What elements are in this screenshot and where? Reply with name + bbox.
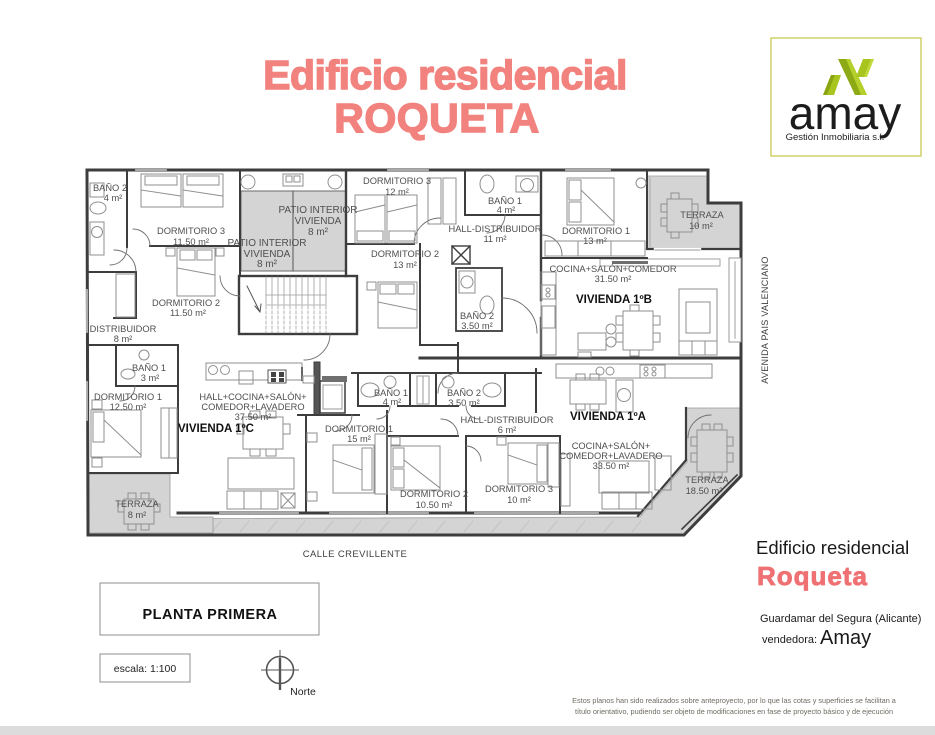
svg-text:Amay: Amay <box>820 627 871 649</box>
svg-text:DORMITORIO 1: DORMITORIO 1 <box>562 226 630 236</box>
svg-text:vendedora:: vendedora: <box>762 634 817 646</box>
svg-text:Gestión Inmobiliaria s.l.: Gestión Inmobiliaria s.l. <box>786 132 885 143</box>
svg-text:4 m²: 4 m² <box>383 397 402 407</box>
svg-text:12.50 m²: 12.50 m² <box>110 402 147 412</box>
svg-text:37.50 m²: 37.50 m² <box>235 412 272 422</box>
svg-text:ROQUETA: ROQUETA <box>334 95 539 141</box>
svg-text:COMEDOR+LAVADERO: COMEDOR+LAVADERO <box>559 451 662 461</box>
svg-text:AVENIDA PAIS VALENCIANO: AVENIDA PAIS VALENCIANO <box>760 256 770 383</box>
svg-text:8 m²: 8 m² <box>128 510 147 520</box>
svg-text:HALL-DISTRIBUIDOR: HALL-DISTRIBUIDOR <box>449 224 542 234</box>
svg-text:Edificio residencial: Edificio residencial <box>756 537 909 558</box>
svg-text:8 m²: 8 m² <box>257 259 278 270</box>
svg-text:3.50 m²: 3.50 m² <box>461 321 493 331</box>
svg-text:Roqueta: Roqueta <box>757 561 868 591</box>
svg-text:VIVIENDA 1ºC: VIVIENDA 1ºC <box>178 423 254 435</box>
svg-text:DORMITORIO 1: DORMITORIO 1 <box>94 392 162 402</box>
svg-text:BAÑO 2: BAÑO 2 <box>93 183 127 193</box>
svg-text:DORMITORIO 3: DORMITORIO 3 <box>485 484 553 494</box>
svg-text:DORMITORIO 2: DORMITORIO 2 <box>400 489 468 499</box>
svg-text:HALL-DISTRIBUIDOR: HALL-DISTRIBUIDOR <box>461 415 554 425</box>
svg-text:HALL+COCINA+SALÓN+: HALL+COCINA+SALÓN+ <box>199 392 306 402</box>
svg-text:VIVIENDA 1ºA: VIVIENDA 1ºA <box>570 411 646 423</box>
svg-text:Edificio residencial: Edificio residencial <box>263 52 627 98</box>
svg-text:6 m²: 6 m² <box>498 425 517 435</box>
svg-text:8 m²: 8 m² <box>114 334 133 344</box>
svg-text:10 m²: 10 m² <box>507 495 531 505</box>
svg-text:Norte: Norte <box>290 686 316 698</box>
svg-text:DORMITORIO 3: DORMITORIO 3 <box>157 226 225 236</box>
svg-text:3 m²: 3 m² <box>141 373 160 383</box>
svg-text:13 m²: 13 m² <box>393 260 417 270</box>
svg-text:33.50 m²: 33.50 m² <box>593 461 630 471</box>
svg-text:PATIO INTERIOR: PATIO INTERIOR <box>278 205 357 216</box>
svg-text:DISTRIBUIDOR: DISTRIBUIDOR <box>90 324 157 334</box>
svg-text:DORMITORIO 2: DORMITORIO 2 <box>152 298 220 308</box>
svg-text:DORMITORIO 3: DORMITORIO 3 <box>363 176 431 186</box>
svg-text:CALLE CREVILLENTE: CALLE CREVILLENTE <box>303 549 407 560</box>
svg-text:VIVIENDA 1ºB: VIVIENDA 1ºB <box>576 294 652 306</box>
svg-text:Estos planos han sido realizad: Estos planos han sido realizados sobre a… <box>572 696 897 705</box>
svg-text:escala: 1:100: escala: 1:100 <box>114 663 177 675</box>
svg-text:4 m²: 4 m² <box>104 193 123 203</box>
svg-text:PATIO INTERIOR: PATIO INTERIOR <box>227 238 306 249</box>
svg-text:3.50 m²: 3.50 m² <box>448 398 480 408</box>
svg-text:TERRAZA: TERRAZA <box>680 210 724 220</box>
svg-text:DORMITORIO 2: DORMITORIO 2 <box>371 249 439 259</box>
svg-text:BAÑO 2: BAÑO 2 <box>447 388 481 398</box>
svg-text:Guardamar del Segura (Alicante: Guardamar del Segura (Alicante) <box>760 613 921 625</box>
svg-text:4 m²: 4 m² <box>497 205 516 215</box>
svg-text:VIVIENDA: VIVIENDA <box>295 216 342 227</box>
svg-text:31.50 m²: 31.50 m² <box>595 274 632 284</box>
svg-text:DORMITORIO 1: DORMITORIO 1 <box>325 424 393 434</box>
svg-text:10.50 m²: 10.50 m² <box>416 500 453 510</box>
svg-text:11 m²: 11 m² <box>483 234 506 244</box>
svg-text:15 m²: 15 m² <box>347 434 371 444</box>
svg-text:COMEDOR+LAVADERO: COMEDOR+LAVADERO <box>201 402 304 412</box>
svg-text:11.50 m²: 11.50 m² <box>170 308 206 318</box>
svg-text:PLANTA PRIMERA: PLANTA PRIMERA <box>142 607 277 623</box>
svg-text:COCINA+SALÓN+: COCINA+SALÓN+ <box>572 441 651 451</box>
svg-text:BAÑO 2: BAÑO 2 <box>460 311 494 321</box>
svg-text:TERRAZA: TERRAZA <box>115 499 159 509</box>
svg-text:COCINA+SALÓN+COMEDOR: COCINA+SALÓN+COMEDOR <box>549 264 676 274</box>
svg-text:11.50 m²: 11.50 m² <box>173 237 209 247</box>
svg-text:18.50 m²: 18.50 m² <box>686 486 723 496</box>
svg-text:12 m²: 12 m² <box>385 187 409 197</box>
svg-text:8 m²: 8 m² <box>308 227 329 238</box>
svg-text:10 m²: 10 m² <box>689 221 713 231</box>
svg-text:título orientativo, pudiendo s: título orientativo, pudiendo ser objeto … <box>575 707 893 716</box>
svg-text:TERRAZA: TERRAZA <box>685 475 729 485</box>
svg-text:BAÑO 1: BAÑO 1 <box>132 363 166 373</box>
svg-text:13 m²: 13 m² <box>583 236 607 246</box>
